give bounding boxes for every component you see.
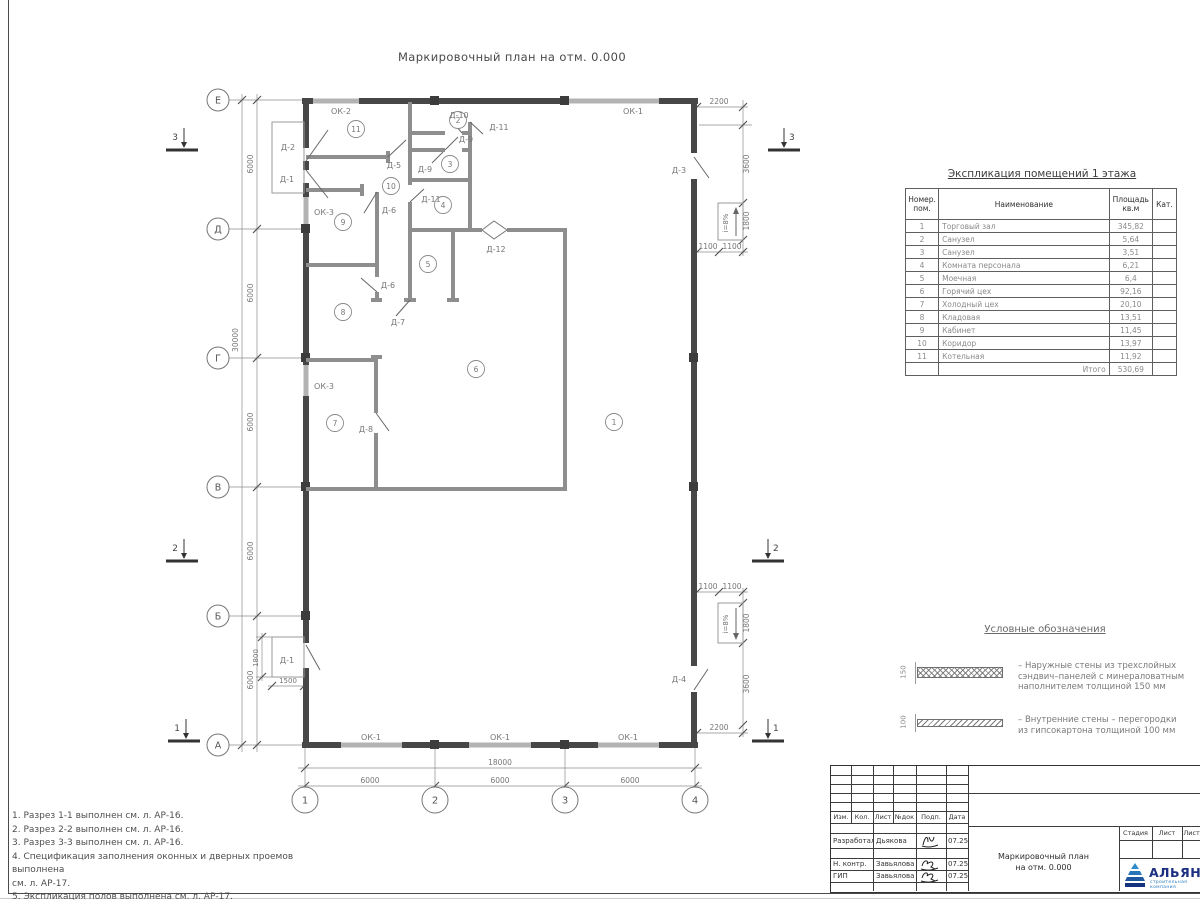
svg-text:1800: 1800 <box>742 613 751 632</box>
door-label-d1b: Д-1 <box>280 656 294 665</box>
table-row: 7Холодный цех20,10 <box>906 298 1177 311</box>
col-room-number: Номер. пом. <box>906 189 939 220</box>
doc-title: Маркировочный план на отм. 0.000 <box>968 851 1119 873</box>
section-label-2-left: 2 <box>172 544 178 554</box>
door-label-d5: Д-5 <box>387 161 401 170</box>
door-label-d12: Д-12 <box>486 245 505 254</box>
svg-text:Е: Е <box>215 96 221 107</box>
door-label-d4: Д-4 <box>672 675 686 684</box>
gip-date: 07.25 <box>948 872 968 880</box>
note-line: см. л. АР-17. <box>12 878 312 892</box>
legend-title: Условные обозначения <box>895 624 1195 635</box>
legend-ext-2 <box>915 714 916 732</box>
window-label-ok2: ОК-2 <box>331 107 351 116</box>
window-label-ok1b3: ОК-1 <box>618 733 638 742</box>
svg-text:i=8%: i=8% <box>722 614 730 633</box>
svg-text:3: 3 <box>562 796 568 807</box>
dimension-ticks <box>238 96 747 790</box>
svg-text:8: 8 <box>341 308 346 317</box>
svg-text:1100: 1100 <box>698 242 717 251</box>
stage-label: Стадия <box>1119 829 1152 837</box>
stamp-col-data: Дата <box>946 813 968 821</box>
exterior-wall-desc: – Наружные стены из трехслойных сэндвич–… <box>1018 661 1184 693</box>
svg-text:6: 6 <box>474 365 479 374</box>
notes: 1. Разрез 1-1 выполнен см. л. АР-16. 2. … <box>12 810 312 900</box>
svg-text:30000: 30000 <box>231 328 240 352</box>
svg-text:6000: 6000 <box>246 283 255 302</box>
section-label-1-right: 1 <box>773 724 779 734</box>
svg-text:2200: 2200 <box>709 97 728 106</box>
stamp-col-list: Лист <box>873 813 893 821</box>
svg-text:6000: 6000 <box>246 670 255 689</box>
interior-wall-swatch <box>917 719 1003 727</box>
window-label-ok3b: ОК-3 <box>314 382 334 391</box>
axis-lines <box>229 100 695 787</box>
svg-text:1100: 1100 <box>722 582 741 591</box>
schedule-table: Номер. пом. Наименование Площадь кв.м Ка… <box>905 188 1177 376</box>
schedule-total-row: Итого530,69 <box>906 363 1177 376</box>
developed-name: Дьякова <box>876 837 915 845</box>
svg-text:i=8%: i=8% <box>722 213 730 232</box>
double-door-symbol <box>482 221 507 239</box>
svg-text:1800: 1800 <box>742 211 751 230</box>
table-row: 6Горячий цех92,16 <box>906 285 1177 298</box>
gip-role: ГИП <box>833 872 873 880</box>
gip-name: Завьялова <box>876 872 915 880</box>
window-label-ok3a: ОК-3 <box>314 208 334 217</box>
svg-text:1100: 1100 <box>698 582 717 591</box>
signature <box>919 870 945 882</box>
exterior-wall-swatch <box>917 667 1003 678</box>
svg-text:1: 1 <box>612 418 617 427</box>
svg-text:6000: 6000 <box>246 541 255 560</box>
ncontr-role: Н. контр. <box>833 860 873 868</box>
total-label: Итого <box>939 363 1110 376</box>
section-markers <box>166 128 800 741</box>
svg-text:6000: 6000 <box>620 776 639 785</box>
ncontr-date: 07.25 <box>948 860 968 868</box>
door-label-d10: Д-10 <box>449 111 468 120</box>
drawing-sheet: Маркировочный план на отм. 0.000 <box>0 0 1200 900</box>
note-line: 4. Спецификация заполнения оконных и две… <box>12 851 312 878</box>
ramp-arrow-down <box>733 633 739 640</box>
partitions <box>306 102 567 489</box>
svg-text:6000: 6000 <box>490 776 509 785</box>
svg-text:11: 11 <box>351 125 361 134</box>
col-room-area: Площадь кв.м <box>1109 189 1152 220</box>
svg-text:Г: Г <box>215 354 221 365</box>
section-label-1-left: 1 <box>174 724 180 734</box>
svg-text:9: 9 <box>341 218 346 227</box>
room-circles <box>327 112 623 432</box>
signature <box>919 858 945 870</box>
svg-text:1800: 1800 <box>252 649 260 667</box>
svg-text:10: 10 <box>386 182 396 191</box>
svg-text:2: 2 <box>432 796 438 807</box>
door-label-d2: Д-2 <box>281 143 295 152</box>
door-label-d7: Д-7 <box>391 318 405 327</box>
axis-circles <box>207 89 708 813</box>
door-label-d1: Д-1 <box>280 175 294 184</box>
table-row: 8Кладовая13,51 <box>906 311 1177 324</box>
table-row: 2Санузел5,64 <box>906 233 1177 246</box>
svg-text:18000: 18000 <box>488 758 512 767</box>
window-label-ok1b1: ОК-1 <box>361 733 381 742</box>
interior-wall-desc: – Внутренние стены – перегородки из гипс… <box>1018 715 1177 736</box>
svg-text:3: 3 <box>448 160 453 169</box>
window-label-ok1b2: ОК-1 <box>490 733 510 742</box>
svg-text:2200: 2200 <box>709 723 728 732</box>
stamp-col-izm: Изм. <box>831 813 851 821</box>
section-label-3-right: 3 <box>789 133 795 143</box>
door-label-d8: Д-8 <box>359 425 373 434</box>
schedule-header-row: Номер. пом. Наименование Площадь кв.м Ка… <box>906 189 1177 220</box>
title-block: Изм. Кол. Лист №док Подп. Дата Разработа… <box>830 765 1200 893</box>
exterior-wall-thickness: 150 <box>900 665 908 678</box>
svg-text:6000: 6000 <box>246 154 255 173</box>
col-room-name: Наименование <box>939 189 1110 220</box>
ncontr-name: Завьялова <box>876 860 915 868</box>
door-label-d11a: Д-11 <box>489 123 508 132</box>
svg-text:3600: 3600 <box>742 154 751 173</box>
axis-letters: ЕД ГВ БА 12 34 <box>214 96 698 807</box>
sheet-label: Лист <box>1152 829 1182 837</box>
legend-ext-1 <box>915 662 916 684</box>
legend: Условные обозначения 150 – Наружные стен… <box>895 624 1195 635</box>
col-room-cat: Кат. <box>1152 189 1176 220</box>
logo-text: АЛЬЯНС <box>1149 865 1200 880</box>
svg-text:Д: Д <box>214 225 221 236</box>
svg-text:6000: 6000 <box>360 776 379 785</box>
porches <box>272 122 304 677</box>
note-line: 1. Разрез 1-1 выполнен см. л. АР-16. <box>12 810 312 824</box>
logo-triangle-icon <box>1125 863 1145 889</box>
table-row: 11Котельная11,92 <box>906 350 1177 363</box>
svg-text:1: 1 <box>302 796 308 807</box>
ramps <box>718 203 743 643</box>
svg-text:4: 4 <box>692 796 698 807</box>
sheets-label: Листов <box>1182 829 1200 837</box>
door-label-d3: Д-3 <box>672 166 686 175</box>
developed-role: Разработал <box>833 837 873 845</box>
ramp-arrow-up <box>733 207 739 214</box>
door-label-d9a: Д-9 <box>459 135 473 144</box>
svg-text:В: В <box>215 483 222 494</box>
interior-wall-thickness: 100 <box>900 715 908 728</box>
svg-text:5: 5 <box>426 260 431 269</box>
table-row: 5Моечная6,4 <box>906 272 1177 285</box>
svg-text:4: 4 <box>441 201 446 210</box>
room-schedule: Экспликация помещений 1 этажа Номер. пом… <box>905 168 1179 376</box>
door-label-d6b: Д-6 <box>381 281 395 290</box>
svg-text:6000: 6000 <box>246 412 255 431</box>
stamp-col-kol: Кол. <box>851 813 873 821</box>
total-value: 530,69 <box>1109 363 1152 376</box>
table-row: 1Торговый зал345,82 <box>906 220 1177 233</box>
schedule-title: Экспликация помещений 1 этажа <box>905 168 1179 180</box>
stamp-col-ndok: №док <box>893 813 916 821</box>
svg-text:1500: 1500 <box>279 677 297 685</box>
company-logo: АЛЬЯНС строительная компания <box>1123 861 1200 891</box>
signature <box>919 833 945 848</box>
section-label-2-right: 2 <box>773 544 779 554</box>
svg-text:Б: Б <box>215 612 222 623</box>
table-row: 4Комната персонала6,21 <box>906 259 1177 272</box>
svg-text:7: 7 <box>333 419 338 428</box>
note-line: 2. Разрез 2-2 выполнен см. л. АР-16. <box>12 824 312 838</box>
svg-text:А: А <box>215 741 222 752</box>
svg-text:1100: 1100 <box>722 242 741 251</box>
floor-plan: Маркировочный план на отм. 0.000 <box>0 0 830 900</box>
table-row: 9Кабинет11,45 <box>906 324 1177 337</box>
door-label-d9b: Д-9 <box>418 165 432 174</box>
svg-text:3600: 3600 <box>742 674 751 693</box>
door-leaves <box>306 119 709 690</box>
plan-title: Маркировочный план на отм. 0.000 <box>398 50 626 64</box>
table-row: 10Коридор13,97 <box>906 337 1177 350</box>
door-label-d6a: Д-6 <box>382 206 396 215</box>
note-line: 3. Разрез 3-3 выполнен см. л. АР-16. <box>12 837 312 851</box>
table-row: 3Санузел3,51 <box>906 246 1177 259</box>
stamp-col-podp: Подп. <box>916 813 946 821</box>
door-label-d11b: Д-11 <box>421 195 440 204</box>
window-label-ok1t: ОК-1 <box>623 107 643 116</box>
logo-subtitle: строительная компания <box>1150 880 1200 890</box>
note-line: 5. Экспликация полов выполнена см. л. АР… <box>12 891 312 900</box>
section-label-3-left: 3 <box>172 133 178 143</box>
developed-date: 07.25 <box>948 837 968 845</box>
